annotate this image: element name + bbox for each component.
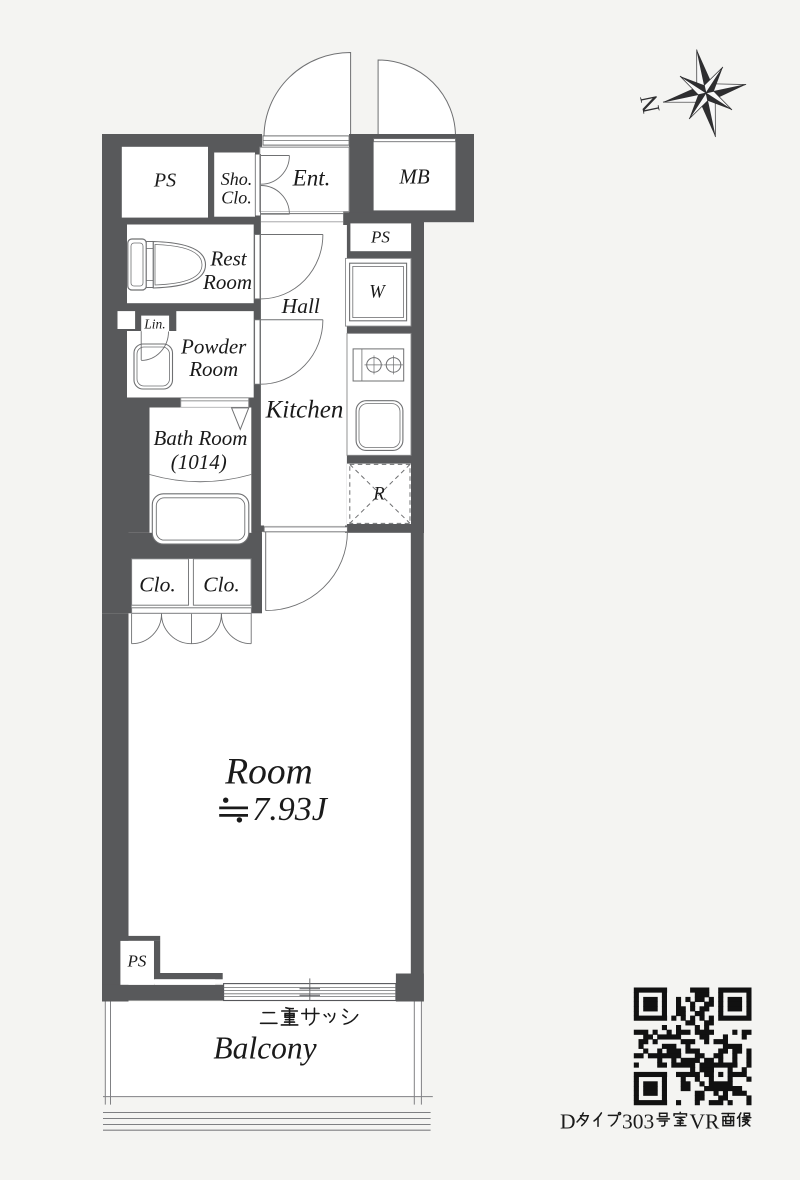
svg-text:PS: PS	[370, 228, 390, 247]
svg-text:(1014): (1014)	[171, 450, 227, 474]
svg-text:Ent.: Ent.	[292, 166, 331, 191]
svg-text:VR: VR	[690, 1110, 721, 1134]
svg-text:Room: Room	[188, 357, 238, 381]
svg-text:Room: Room	[224, 751, 313, 792]
svg-text:Clo.: Clo.	[139, 572, 175, 596]
svg-text:MB: MB	[398, 165, 429, 189]
svg-text:Sho.: Sho.	[221, 169, 253, 189]
svg-text:Room: Room	[202, 270, 252, 294]
svg-text:Rest: Rest	[209, 247, 247, 271]
svg-text:D: D	[560, 1110, 576, 1134]
svg-text:Bath Room: Bath Room	[154, 426, 248, 450]
svg-text:Clo.: Clo.	[203, 572, 239, 596]
svg-text:PS: PS	[127, 952, 147, 971]
svg-text:PS: PS	[153, 170, 176, 192]
svg-text:303: 303	[622, 1110, 654, 1134]
svg-text:Kitchen: Kitchen	[265, 397, 344, 424]
svg-text:Lin.: Lin.	[143, 317, 165, 332]
svg-text:Balcony: Balcony	[213, 1031, 316, 1066]
svg-text:Hall: Hall	[281, 294, 320, 318]
svg-text:Clo.: Clo.	[221, 188, 252, 208]
svg-text:7.93J: 7.93J	[252, 791, 329, 828]
svg-text:W: W	[369, 283, 386, 303]
svg-text:Powder: Powder	[180, 335, 247, 359]
svg-text:R: R	[372, 485, 384, 505]
svg-text:N: N	[635, 92, 665, 115]
